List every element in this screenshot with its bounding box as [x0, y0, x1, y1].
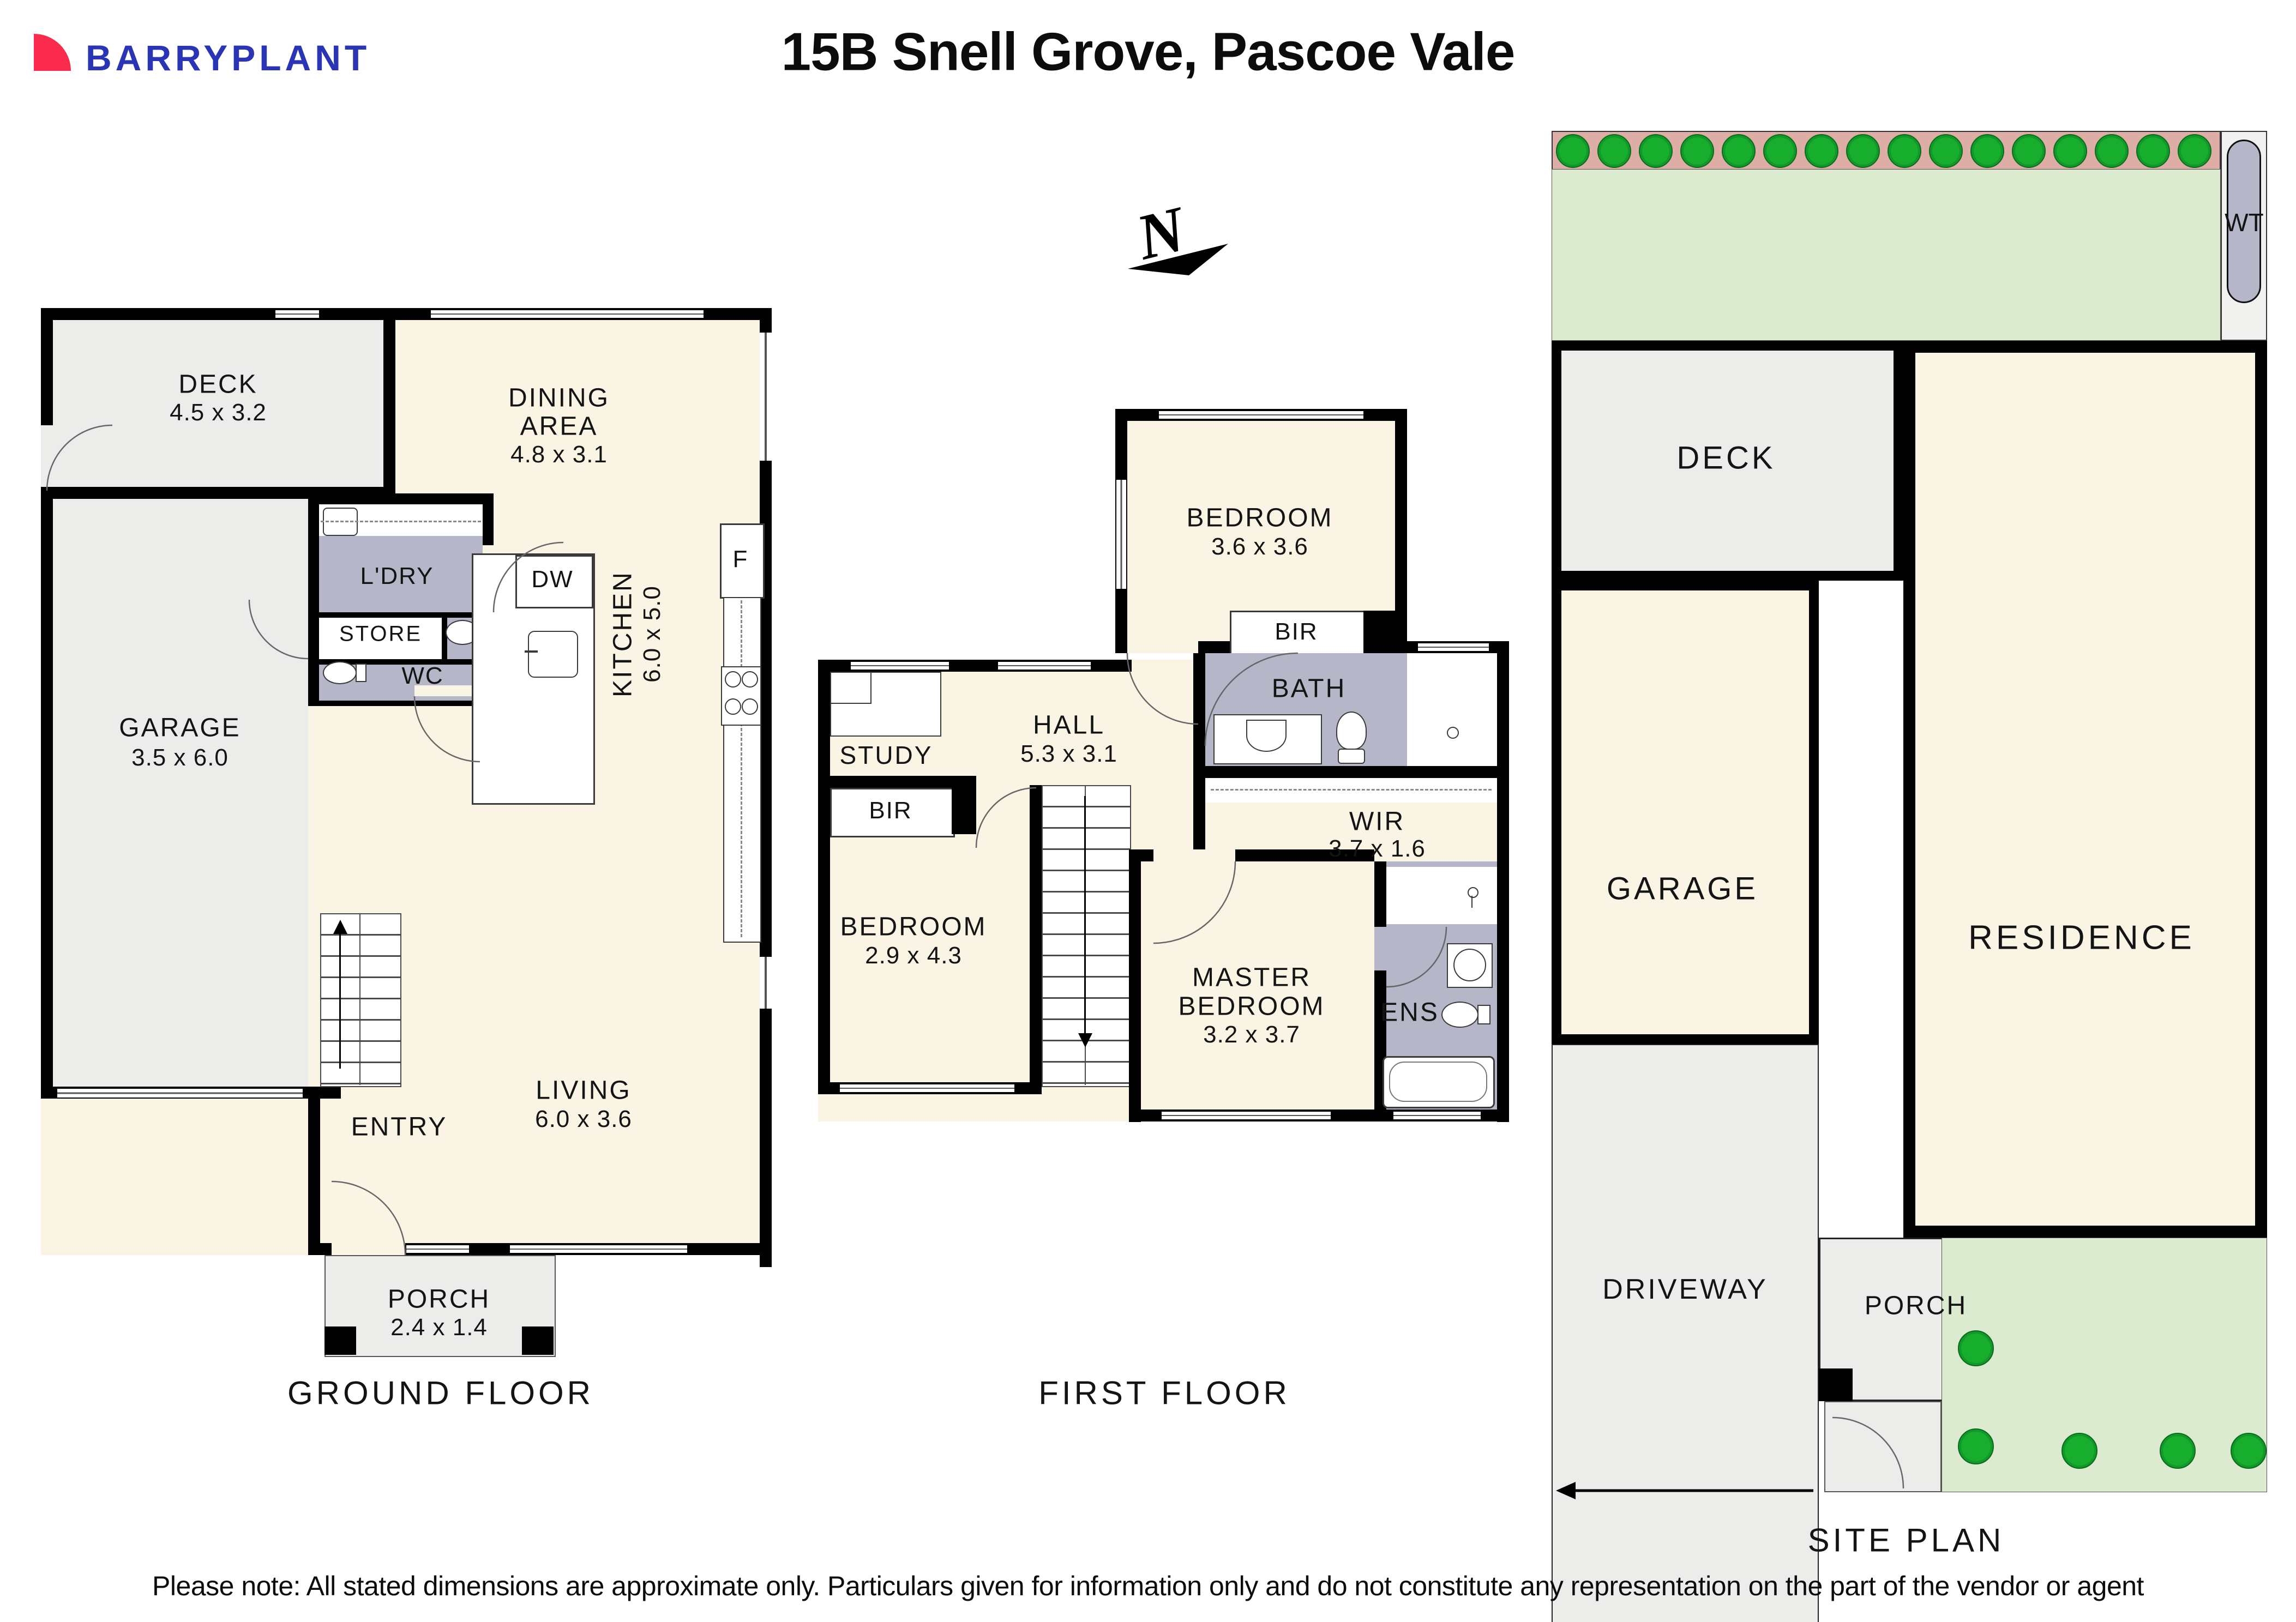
ens-toilet-tank-icon	[1477, 1005, 1490, 1024]
bath-vanity-basin-icon	[1246, 720, 1287, 752]
ens-vanity	[1386, 867, 1497, 924]
tree-icon	[1680, 134, 1714, 168]
ff-bed3-dims: 2.9 x 4.3	[865, 942, 962, 969]
ens-tap-stem	[1471, 896, 1472, 908]
tree-icon	[2160, 1433, 2196, 1469]
stove-burner-2	[742, 671, 758, 688]
ff-bed3-window	[840, 1084, 1014, 1092]
ff-bed2-window-left	[1116, 480, 1126, 589]
ff-ens-wall-left-a	[1374, 861, 1386, 927]
ff-wir-label: WIR	[1349, 807, 1405, 837]
sp-front-path	[1824, 1401, 1942, 1492]
site-plan-title: SITE PLAN	[1808, 1522, 2005, 1559]
sp-driveway	[1552, 1044, 1819, 1622]
sp-porch-label: PORCH	[1865, 1291, 1967, 1321]
ff-shower-window	[1418, 643, 1489, 651]
kitchen-counter-dashed	[741, 600, 742, 937]
ff-master-label-2: BEDROOM	[1178, 992, 1325, 1022]
stove-burner-4	[742, 698, 758, 715]
ff-hall-window	[998, 662, 1091, 670]
sp-rear-lawn	[1552, 169, 2221, 341]
ff-master-dims: 3.2 x 3.7	[1203, 1021, 1300, 1048]
ff-bed2-door-gap	[1127, 641, 1198, 653]
gf-stairs-arrow-head	[333, 920, 347, 934]
gf-porch-label: PORCH	[388, 1285, 490, 1315]
tree-icon	[2053, 134, 2087, 168]
sp-porch-post-left	[1819, 1368, 1853, 1401]
tree-icon	[1556, 134, 1590, 168]
tree-icon	[1597, 134, 1631, 168]
ground-floor-plan: DECK 4.5 x 3.2 DINING AREA 4.8 x 3.1 GAR…	[33, 297, 807, 1448]
shower-tap-icon	[1447, 727, 1459, 739]
gf-porch-post-right	[522, 1326, 554, 1355]
tree-icon	[1846, 134, 1880, 168]
tree-icon	[1639, 134, 1673, 168]
gf-store-label: STORE	[339, 622, 422, 647]
gf-dining-label-2: AREA	[520, 412, 598, 442]
gf-wall-living-left	[308, 1099, 320, 1255]
ens-toilet-bowl-icon	[1441, 1002, 1478, 1028]
gf-stairs-arrow-stem	[339, 932, 341, 1069]
gf-living-window-bottom-2	[510, 1245, 687, 1253]
tree-icon	[1888, 134, 1921, 168]
ens-tap-icon	[1468, 887, 1478, 898]
gf-stairs	[320, 913, 401, 1087]
first-floor-plan: BEDROOM 3.6 x 3.6 BIR BATH STUDY HALL 5.…	[815, 406, 1541, 1420]
gf-entry-door-gap	[332, 1243, 405, 1255]
water-tank-label: WT	[2225, 208, 2264, 237]
gf-garage-door	[57, 1089, 303, 1098]
ens-bathtub-inner	[1389, 1062, 1487, 1102]
site-plan: WT DECK RESIDENCE GARAGE DRIVEWAY PORCH	[1552, 131, 2271, 1565]
ens-basin-icon	[1453, 949, 1486, 981]
ff-ens-label: ENS	[1380, 998, 1439, 1028]
ff-hall-label: HALL	[1033, 710, 1105, 740]
kitchen-counter	[723, 597, 761, 943]
gf-kitchen-window-right	[760, 333, 772, 461]
ff-master-label-1: MASTER	[1192, 963, 1311, 993]
gf-porch-post-left	[324, 1326, 356, 1355]
tree-icon	[2178, 134, 2211, 168]
gf-wall-deck-right	[383, 308, 395, 493]
stove-burner-1	[725, 671, 741, 688]
ff-bed2-robe-label: BIR	[1275, 618, 1318, 646]
fridge-label: F	[733, 546, 749, 573]
sp-residence-label: RESIDENCE	[1968, 919, 2195, 957]
wc-toilet-bowl-icon	[323, 661, 357, 684]
gf-kitchen-label: KITCHEN	[608, 571, 638, 697]
ff-bath-wall-bottom	[1193, 766, 1509, 778]
ff-bed3-robe-wall-right	[952, 788, 976, 834]
gf-deck-label: DECK	[178, 370, 257, 400]
tree-icon	[2231, 1433, 2267, 1469]
sp-garage	[1552, 581, 1819, 1044]
ff-bed2-robe-wall	[1363, 611, 1407, 653]
ff-bed2-label: BEDROOM	[1186, 503, 1333, 533]
tree-icon	[2012, 134, 2046, 168]
island-sink-tap	[525, 650, 538, 653]
gf-deck-door-gap	[41, 425, 53, 491]
gf-dining-window	[431, 310, 704, 318]
ff-study-label: STUDY	[840, 740, 933, 770]
gf-kitchen-dims: 6.0 x 5.0	[639, 586, 666, 683]
ff-bed2-dims: 3.6 x 3.6	[1211, 533, 1308, 560]
ff-wall-left	[818, 660, 830, 1088]
gf-deck-window	[275, 310, 319, 318]
disclaimer-text: Please note: All stated dimensions are a…	[0, 1570, 2296, 1602]
ff-wir-dims: 3.7 x 1.6	[1329, 835, 1426, 863]
sp-deck-label: DECK	[1676, 440, 1775, 477]
study-desk-return	[830, 672, 871, 704]
ground-floor-title: GROUND FLOOR	[287, 1374, 594, 1412]
tree-icon	[2061, 1433, 2097, 1469]
sp-garage-label: GARAGE	[1607, 871, 1758, 907]
ff-hall-dims: 5.3 x 3.1	[1020, 740, 1117, 768]
ff-bed3-robe-wall-top	[818, 776, 976, 788]
ff-master-door-gap	[1153, 849, 1235, 861]
ff-stairs-arrow-stem	[1084, 796, 1086, 1036]
gf-entry-label: ENTRY	[351, 1112, 448, 1142]
brand-logo-icon	[34, 34, 71, 71]
page-title: 15B Snell Grove, Pascoe Vale	[782, 21, 1515, 83]
sp-residence	[1903, 341, 2267, 1238]
ff-bed2-window-top	[1159, 411, 1363, 419]
gf-laundry-label: L'DRY	[360, 563, 434, 590]
gf-garage-dims: 3.5 x 6.0	[131, 744, 229, 771]
tree-icon	[1958, 1330, 1994, 1366]
tree-icon	[1763, 134, 1797, 168]
gf-living-label: LIVING	[536, 1076, 631, 1106]
gf-wc-label: WC	[401, 662, 443, 690]
wc-toilet-tank-icon	[356, 664, 366, 682]
ff-stairs-wall-right	[1129, 849, 1141, 1122]
gf-garage-label: GARAGE	[119, 713, 241, 743]
tree-icon	[1970, 134, 2004, 168]
ff-stairs-wall-left	[1030, 785, 1042, 1082]
gf-deck-dims: 4.5 x 3.2	[170, 399, 267, 426]
gf-dining-dims: 4.8 x 3.1	[510, 441, 608, 468]
tree-icon	[1722, 134, 1756, 168]
ff-wall-right	[1497, 653, 1509, 1122]
brand-logo: BARRYPLANT	[34, 34, 416, 77]
gf-stairs-divider	[359, 913, 360, 1085]
tree-icon	[1958, 1428, 1994, 1464]
gf-living-window-bottom-1	[406, 1245, 469, 1253]
dishwasher-label: DW	[531, 566, 573, 593]
sp-driveway-label: DRIVEWAY	[1602, 1273, 1768, 1306]
ff-study-window	[851, 662, 949, 670]
tree-icon	[1805, 134, 1838, 168]
ff-wir-dashed	[1211, 789, 1492, 791]
ff-ens-window	[1393, 1112, 1481, 1119]
svg-text:N: N	[1129, 194, 1194, 274]
ff-stairs-arrow-head	[1078, 1033, 1092, 1047]
ff-bath-wall-left	[1193, 653, 1205, 766]
bath-toilet-bowl-icon	[1336, 711, 1367, 750]
tree-icon	[2136, 134, 2170, 168]
brand-logo-text: BARRYPLANT	[86, 37, 370, 79]
first-floor-title: FIRST FLOOR	[1038, 1374, 1290, 1412]
ff-bed3-robe-label: BIR	[869, 797, 912, 824]
floorplan-page: BARRYPLANT 15B Snell Grove, Pascoe Vale …	[0, 0, 2296, 1622]
ff-shower-nook	[1407, 653, 1497, 766]
north-compass-icon: N	[1113, 194, 1243, 292]
ff-bath-label: BATH	[1272, 674, 1346, 704]
gf-living-window-right	[760, 957, 772, 1009]
tree-icon	[1929, 134, 1963, 168]
gf-garage-floor	[41, 493, 308, 1099]
ff-bed3-label: BEDROOM	[840, 912, 987, 942]
bath-toilet-tank-icon	[1338, 749, 1365, 764]
island-sink-icon	[528, 631, 578, 678]
ff-master-window	[1162, 1112, 1331, 1119]
gf-living-dims: 6.0 x 3.6	[535, 1106, 632, 1133]
tree-icon	[2095, 134, 2129, 168]
gf-bench-dashed-line	[321, 521, 481, 522]
gf-porch-dims: 2.4 x 1.4	[390, 1314, 488, 1341]
stove-burner-3	[725, 698, 741, 715]
gf-dining-label-1: DINING	[508, 383, 610, 413]
